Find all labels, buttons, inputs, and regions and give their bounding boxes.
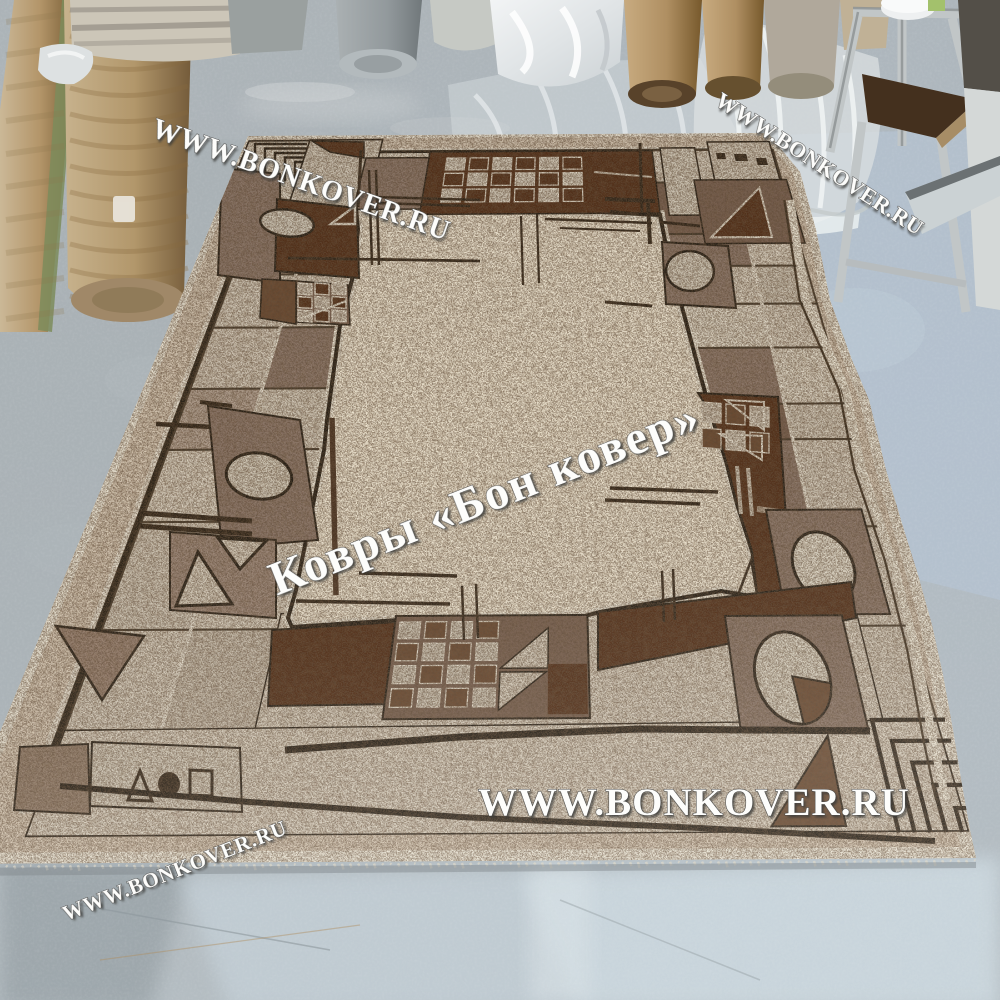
svg-text:WWW.BONKOVER.RU: WWW.BONKOVER.RU (478, 781, 910, 824)
svg-text:WWW.BONKOVER.RU: WWW.BONKOVER.RU (148, 113, 455, 247)
svg-text:WWW.BONKOVER.RU: WWW.BONKOVER.RU (711, 87, 928, 240)
svg-text:Ковры «Бон ковер»: Ковры «Бон ковер» (262, 389, 708, 606)
svg-text:WWW.BONKOVER.RU: WWW.BONKOVER.RU (59, 816, 291, 926)
